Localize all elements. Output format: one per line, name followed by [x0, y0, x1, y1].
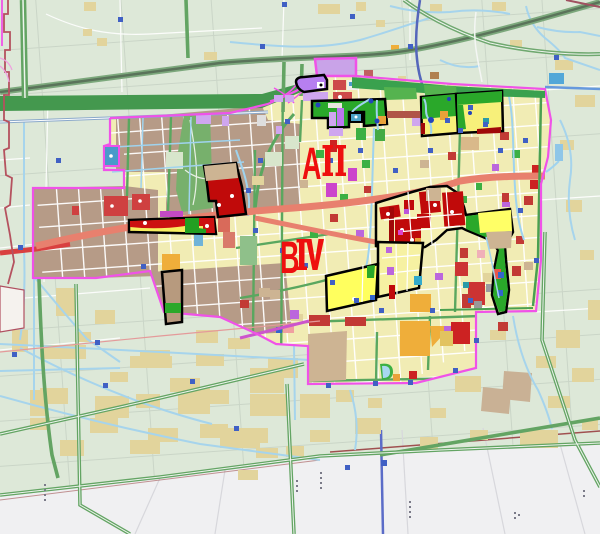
svg-text:A: A [302, 138, 321, 189]
